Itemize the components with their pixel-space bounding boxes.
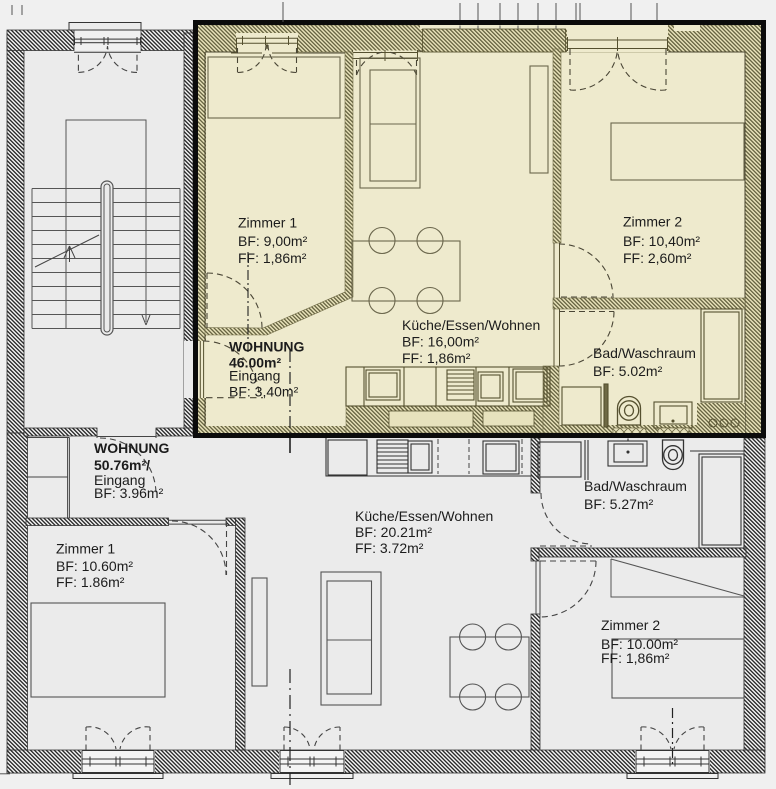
svg-text:FF: 1,86m²: FF: 1,86m² [238,250,307,266]
svg-text:Küche/Essen/Wohnen: Küche/Essen/Wohnen [402,317,540,333]
svg-text:FF: 1,86m²: FF: 1,86m² [402,350,471,366]
svg-text:BF: 16,00m²: BF: 16,00m² [402,334,479,350]
svg-text:Eingang: Eingang [229,368,280,384]
svg-text:BF: 10,40m²: BF: 10,40m² [623,233,700,249]
svg-text:Bad/Waschraum: Bad/Waschraum [584,478,687,494]
svg-text:Bad/Waschraum: Bad/Waschraum [593,345,696,361]
svg-text:BF: 5.27m²: BF: 5.27m² [584,496,654,512]
svg-text:FF: 2,60m²: FF: 2,60m² [623,250,692,266]
svg-text:BF: 5.02m²: BF: 5.02m² [593,363,663,379]
svg-text:BF: 20.21m²: BF: 20.21m² [355,524,432,540]
svg-text:FF: 3.72m²: FF: 3.72m² [355,540,424,556]
svg-text:Küche/Essen/Wohnen: Küche/Essen/Wohnen [355,508,493,524]
svg-text:BF: 10.60m²: BF: 10.60m² [56,558,133,574]
svg-text:Zimmer 1: Zimmer 1 [238,215,297,231]
svg-text:50.76m²/: 50.76m²/ [94,457,150,473]
svg-text:Zimmer 2: Zimmer 2 [601,617,660,633]
svg-text:WOHNUNG: WOHNUNG [229,339,305,355]
svg-text:FF: 1,86m²: FF: 1,86m² [601,650,670,666]
svg-text:BF: 9,00m²: BF: 9,00m² [238,233,308,249]
svg-text:BF: 3.96m²: BF: 3.96m² [94,485,164,501]
svg-text:Zimmer 1: Zimmer 1 [56,541,115,557]
svg-text:Zimmer 2: Zimmer 2 [623,214,682,230]
svg-text:BF: 3,40m²: BF: 3,40m² [229,384,299,400]
svg-text:FF: 1.86m²: FF: 1.86m² [56,574,125,590]
svg-text:WOHNUNG: WOHNUNG [94,440,170,456]
